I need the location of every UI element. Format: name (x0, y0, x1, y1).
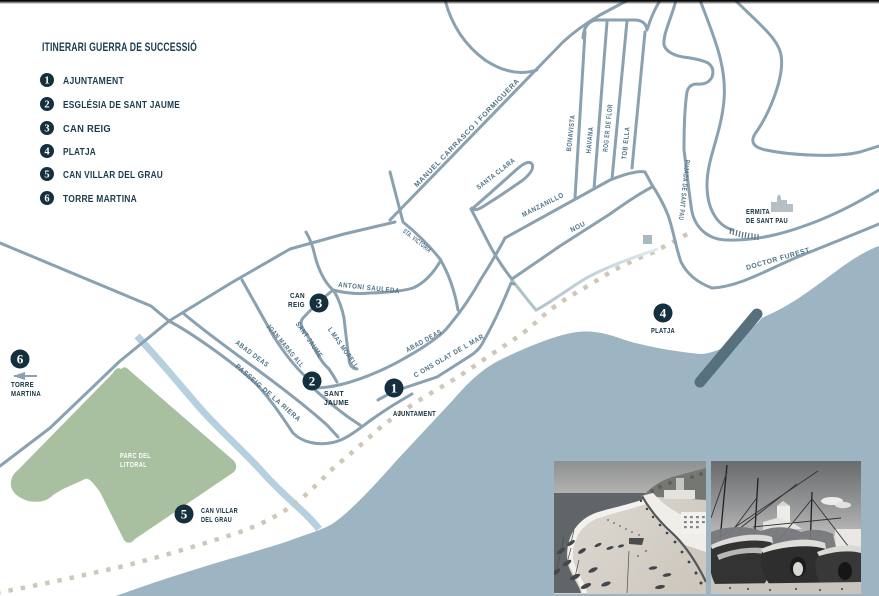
svg-text:AJUNTAMENT: AJUNTAMENT (393, 409, 436, 418)
svg-text:CAN VILLAR: CAN VILLAR (201, 506, 238, 515)
svg-text:5: 5 (44, 170, 49, 181)
svg-text:TORRE MARTINA: TORRE MARTINA (63, 193, 137, 205)
svg-text:2: 2 (309, 374, 316, 389)
svg-text:CAN VILLAR DEL GRAU: CAN VILLAR DEL GRAU (63, 169, 163, 181)
svg-text:3: 3 (316, 296, 323, 311)
svg-text:PLATJA: PLATJA (63, 146, 96, 158)
svg-text:ERMITA: ERMITA (746, 207, 770, 216)
svg-text:6: 6 (17, 352, 24, 367)
svg-text:1: 1 (391, 381, 398, 396)
svg-text:TORRE: TORRE (11, 380, 34, 389)
svg-text:4: 4 (44, 147, 50, 158)
svg-text:ESGLÉSIA DE SANT JAUME: ESGLÉSIA DE SANT JAUME (63, 98, 180, 111)
svg-text:4: 4 (660, 306, 667, 321)
svg-text:SANT: SANT (324, 389, 344, 398)
svg-text:PARC DEL: PARC DEL (120, 453, 151, 460)
svg-text:PLATJA: PLATJA (651, 326, 675, 335)
svg-text:CAN: CAN (290, 291, 305, 300)
svg-text:DEL GRAU: DEL GRAU (201, 515, 232, 524)
svg-text:REIG: REIG (288, 300, 305, 309)
svg-text:DE SANT PAU: DE SANT PAU (746, 216, 788, 225)
svg-text:5: 5 (181, 507, 188, 522)
svg-text:LITORAL: LITORAL (120, 462, 147, 469)
svg-text:MARTINA: MARTINA (11, 389, 41, 398)
svg-text:AJUNTAMENT: AJUNTAMENT (63, 75, 124, 87)
svg-text:2: 2 (44, 100, 49, 111)
svg-text:CAN REIG: CAN REIG (63, 123, 111, 135)
svg-text:JAUME: JAUME (324, 398, 349, 407)
svg-text:6: 6 (44, 194, 49, 205)
svg-text:1: 1 (44, 76, 49, 87)
svg-text:ITINERARI GUERRA DE SUCCESSIÓ: ITINERARI GUERRA DE SUCCESSIÓ (42, 39, 197, 54)
svg-text:3: 3 (44, 124, 49, 135)
